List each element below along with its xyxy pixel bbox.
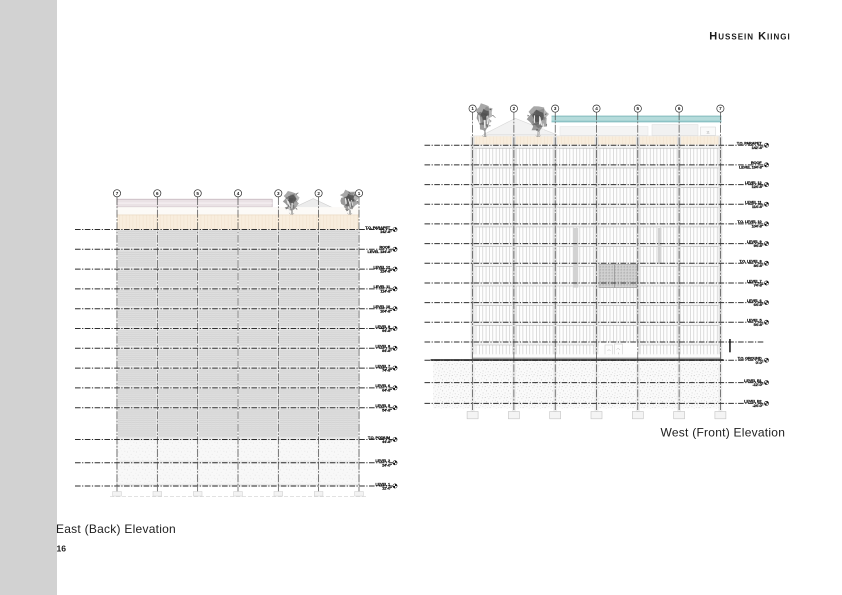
svg-text:104'-8": 104'-8" bbox=[752, 224, 764, 229]
svg-text:3: 3 bbox=[554, 106, 557, 111]
svg-text:-12'-0": -12'-0" bbox=[752, 382, 763, 387]
svg-text:64'-8": 64'-8" bbox=[754, 302, 764, 307]
svg-text:64'-8": 64'-8" bbox=[382, 388, 392, 393]
svg-text:Hussein Kiingi: Hussein Kiingi bbox=[709, 31, 790, 43]
svg-text:5: 5 bbox=[196, 191, 199, 196]
svg-text:104'-8": 104'-8" bbox=[380, 308, 392, 313]
svg-text:4: 4 bbox=[595, 106, 598, 111]
svg-text:-24'-0": -24'-0" bbox=[752, 403, 763, 408]
svg-text:54'-8": 54'-8" bbox=[382, 407, 392, 412]
svg-text:114'-8": 114'-8" bbox=[752, 204, 764, 209]
svg-text:124'-8": 124'-8" bbox=[380, 269, 392, 274]
svg-text:114'-8": 114'-8" bbox=[380, 289, 392, 294]
svg-text:5: 5 bbox=[637, 106, 640, 111]
svg-text:11: 11 bbox=[706, 131, 710, 135]
svg-text:24'-0": 24'-0" bbox=[382, 462, 392, 467]
svg-text:1: 1 bbox=[471, 106, 474, 111]
svg-text:142'-8": 142'-8" bbox=[752, 145, 764, 150]
svg-text:54'-8": 54'-8" bbox=[754, 322, 764, 327]
svg-text:74'-8": 74'-8" bbox=[382, 368, 392, 373]
svg-text:44'-8": 44'-8" bbox=[382, 439, 392, 444]
svg-text:74'-8": 74'-8" bbox=[754, 283, 764, 288]
svg-text:94'-8": 94'-8" bbox=[754, 243, 764, 248]
svg-text:6: 6 bbox=[678, 106, 681, 111]
svg-text:124'-8": 124'-8" bbox=[752, 184, 764, 189]
svg-text:7: 7 bbox=[719, 106, 722, 111]
svg-text:7: 7 bbox=[116, 191, 119, 196]
svg-text:1: 1 bbox=[358, 191, 361, 196]
svg-text:16: 16 bbox=[57, 543, 67, 553]
svg-text:142'-8": 142'-8" bbox=[380, 229, 392, 234]
svg-text:West (Front) Elevation: West (Front) Elevation bbox=[661, 425, 786, 439]
svg-text:2: 2 bbox=[317, 191, 320, 196]
svg-text:LEVEL 134'-8": LEVEL 134'-8" bbox=[367, 249, 392, 254]
svg-text:12'-0": 12'-0" bbox=[382, 486, 392, 491]
svg-text:3: 3 bbox=[277, 191, 280, 196]
svg-text:84'-8": 84'-8" bbox=[382, 348, 392, 353]
svg-text:East (Back) Elevation: East (Back) Elevation bbox=[56, 522, 176, 536]
svg-text:6: 6 bbox=[156, 191, 159, 196]
svg-text:4: 4 bbox=[237, 191, 240, 196]
svg-text:LEVEL 134'-8": LEVEL 134'-8" bbox=[739, 165, 764, 170]
svg-text:2: 2 bbox=[513, 106, 516, 111]
svg-text:0'-0": 0'-0" bbox=[756, 360, 764, 365]
svg-text:94'-8": 94'-8" bbox=[382, 328, 392, 333]
svg-text:84'-8": 84'-8" bbox=[754, 263, 764, 268]
